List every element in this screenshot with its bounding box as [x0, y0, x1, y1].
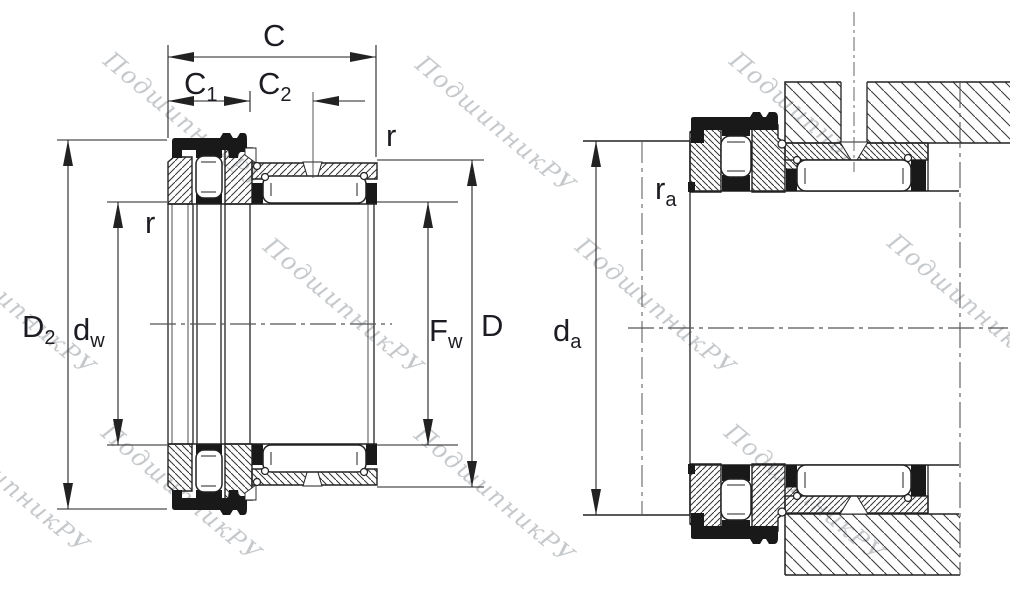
label-dw: dw — [73, 312, 105, 352]
label-D: D — [481, 308, 503, 343]
right-view-mounted-bearing: da ra — [553, 12, 1010, 575]
label-D2: D2 — [22, 309, 56, 349]
technical-drawing: C C1 C2 r r D2 dw Fw D — [0, 0, 1010, 604]
label-ra: ra — [655, 171, 677, 211]
label-C1: C1 — [184, 66, 218, 106]
label-C2: C2 — [258, 66, 292, 106]
bearing-drawing-page: ПодшипникРУ ПодшипникРУ ПодшипникРУ Подш… — [0, 0, 1010, 604]
label-C: C — [263, 18, 285, 53]
dimension-da — [591, 141, 601, 515]
label-r-bore: r — [145, 205, 155, 240]
label-Fw: Fw — [429, 313, 463, 353]
dimension-lines-left-view — [57, 45, 484, 509]
label-r-outer: r — [386, 118, 396, 153]
left-view-bearing-section: C C1 C2 r r D2 dw Fw D — [22, 18, 503, 515]
label-da: da — [553, 313, 582, 353]
